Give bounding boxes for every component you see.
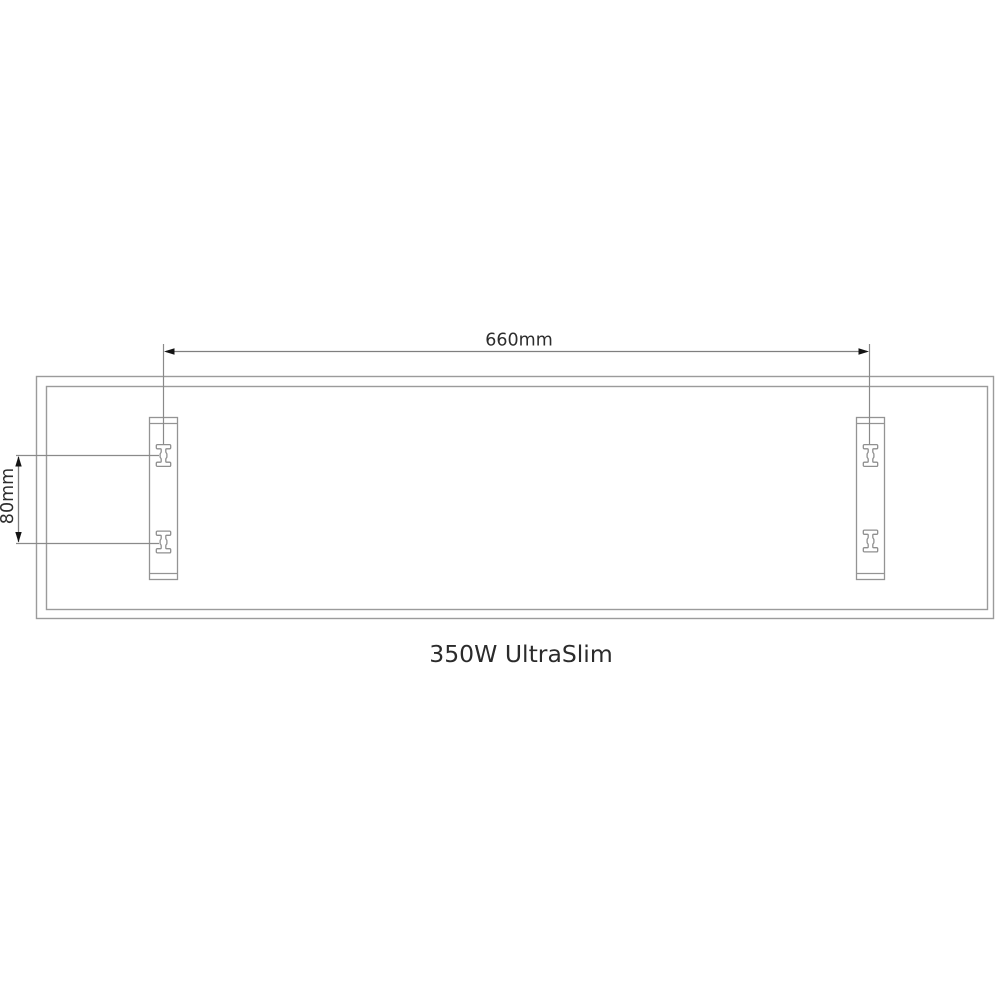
arrowhead-up-icon (15, 456, 21, 467)
width-dimension-label: 660mm (485, 331, 553, 351)
dimension-width: 660mm (164, 331, 869, 355)
mounting-bracket-right (857, 418, 885, 580)
arrowhead-left-icon (164, 348, 175, 354)
bracket-body (857, 418, 885, 580)
technical-drawing: 660mm 80mm 350W UltraSlim (0, 0, 1000, 1000)
panel-outer-outline (37, 377, 994, 619)
spacing-dimension-label: 80mm (0, 468, 18, 524)
arrowhead-down-icon (15, 532, 21, 543)
arrowhead-right-icon (859, 348, 870, 354)
product-title: 350W UltraSlim (429, 640, 612, 668)
panel-inner-outline (47, 387, 988, 610)
dimension-slot-spacing: 80mm (0, 456, 22, 543)
diagram-page: 660mm 80mm 350W UltraSlim (0, 0, 1000, 1000)
